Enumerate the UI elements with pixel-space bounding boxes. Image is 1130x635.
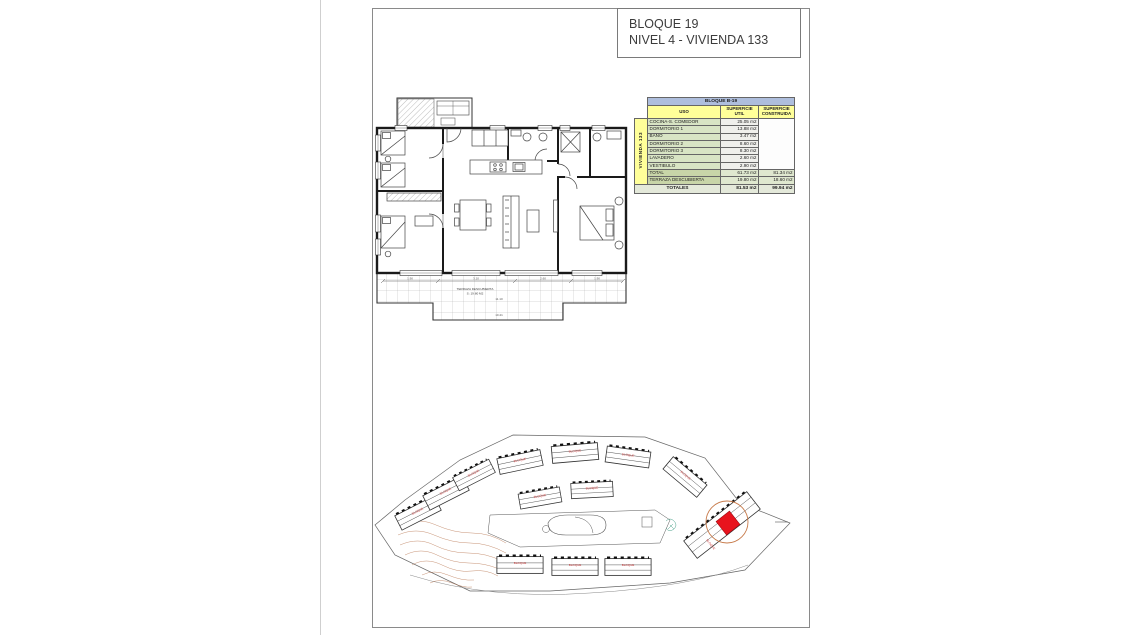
chair [487, 204, 492, 212]
pillow [383, 165, 391, 171]
title-bloque: BLOQUE 19 [629, 16, 800, 32]
col-header-construida: SUPERFICIE CONSTRUIDA [759, 106, 795, 119]
col-header-uso: USO [648, 106, 721, 119]
garden-marks [666, 519, 676, 531]
terrain-contours [398, 521, 506, 587]
dim-label: 1.90 [594, 277, 600, 281]
terrace-label: TERRAZA DESCUBIERTA [457, 287, 495, 291]
table-row-uso: LAVADERO [648, 155, 721, 162]
pillow [606, 209, 613, 221]
col-header-util: SUPERFICIE UTIL [721, 106, 759, 119]
svg-text:BLOQUE: BLOQUE [622, 563, 635, 567]
title-nivel-vivienda: NIVEL 4 - VIVIENDA 133 [629, 32, 800, 48]
svg-text:BLOQUE: BLOQUE [514, 561, 527, 565]
dim-label: 3.10 [473, 277, 479, 281]
area-table: BLOQUE B-19 USO SUPERFICIE UTIL SUPERFIC… [634, 97, 795, 194]
table-row-util: 2.90 m2 [721, 162, 759, 169]
table-row-util: 25.05 m2 [721, 119, 759, 126]
sofa [527, 210, 539, 232]
left-bedrooms-furniture [381, 131, 441, 257]
svg-text:BLOQUE: BLOQUE [569, 563, 582, 567]
table-row-uso: DORMITORIO 1 [648, 126, 721, 133]
title-block: BLOQUE 19 NIVEL 4 - VIVIENDA 133 [617, 8, 801, 58]
pool-area [488, 510, 670, 547]
totales-construida: 99.94 m2 [759, 184, 795, 193]
table-row-util: 3.47 m2 [721, 133, 759, 140]
pool [548, 515, 606, 535]
table-row-uso: COCINA-S. COMEDOR [648, 119, 721, 126]
terraza-row-construida: 18.60 m2 [759, 177, 795, 184]
bathroom-fixtures [511, 130, 621, 152]
dim-label: 1.90 [407, 277, 413, 281]
table-block-header: BLOQUE B-19 [648, 98, 795, 106]
dim-label: 2.60 [540, 277, 546, 281]
total-row-label: TOTAL [648, 170, 721, 177]
total-row-util: 61.73 m2 [721, 170, 759, 177]
chair [455, 218, 460, 226]
vivienda-label-cell: VIVIENDA 133 [635, 119, 648, 185]
desk [415, 216, 433, 226]
wardrobe [387, 193, 441, 201]
nightstand [385, 251, 391, 257]
washer [523, 133, 531, 141]
dryer [539, 133, 547, 141]
table-row-uso: VESTIBULO [648, 162, 721, 169]
sheet-fold-line [320, 0, 321, 635]
chair [455, 204, 460, 212]
site-plan: BLOQUE BLOQUE BLOQUE BLOQUE BLOQUE BLOQU… [370, 425, 802, 605]
floor-plan: TERRAZA DESCUBIERTA S: 19.80 M2 1.90 3.1… [375, 92, 637, 337]
terrace: TERRAZA DESCUBIERTA S: 19.80 M2 1.90 3.1… [377, 273, 626, 320]
table-row-util: 8.60 m2 [721, 140, 759, 147]
table-row-util: 2.60 m2 [721, 155, 759, 162]
terraza-row-util: 19.80 m2 [721, 177, 759, 184]
drawing-page: BLOQUE 19 NIVEL 4 - VIVIENDA 133 TERRAZA… [0, 0, 1130, 635]
master-bedroom-furniture [580, 197, 623, 249]
totales-util: 81.53 m2 [721, 184, 759, 193]
table-row-uso: DORMITORIO 3 [648, 148, 721, 155]
dining-table [460, 200, 486, 230]
dim-total-label: 11.10 [495, 297, 503, 301]
pillow [606, 224, 613, 236]
living-dining-furniture [455, 196, 558, 248]
chair [487, 218, 492, 226]
terrace-area-label: S: 19.80 M2 [467, 292, 484, 296]
pillow [383, 218, 391, 224]
table-row-uso: BAÑO [648, 133, 721, 140]
table-row-util: 8.30 m2 [721, 148, 759, 155]
building-blocks [394, 442, 760, 576]
toilet [593, 133, 601, 141]
svg-text:BLOQUE: BLOQUE [586, 486, 599, 491]
totales-label: TOTALES [635, 184, 721, 193]
nightstand [615, 241, 623, 249]
total-row-construida: 81.34 m2 [759, 170, 795, 177]
table-row-uso: DORMITORIO 2 [648, 140, 721, 147]
laundry-sink [511, 130, 521, 136]
pillow [383, 133, 391, 139]
dim-terrace-label: 10.41 [495, 313, 503, 317]
construida-empty-cell [759, 119, 795, 170]
nightstand [385, 156, 391, 162]
sink [515, 164, 523, 170]
stair-core [397, 98, 472, 128]
washbasin [607, 131, 621, 139]
terraza-row-label: TERRAZA DESCUBIERTA [648, 177, 721, 184]
nightstand [615, 197, 623, 205]
table-row-util: 13.88 m2 [721, 126, 759, 133]
tv-unit [554, 200, 558, 232]
